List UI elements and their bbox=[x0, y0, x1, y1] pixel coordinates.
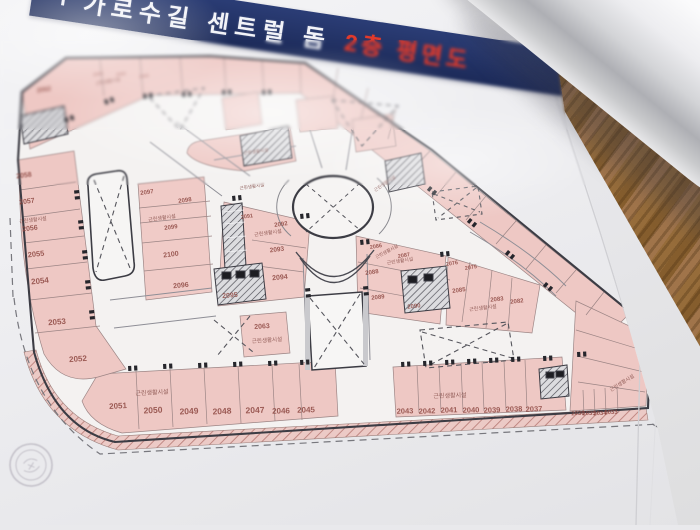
banner-clipped-glyph bbox=[61, 0, 76, 9]
round-stamp bbox=[4, 438, 59, 493]
photo-scene: 가로수길 센트럴 돔 2층 평면도 bbox=[0, 0, 700, 525]
